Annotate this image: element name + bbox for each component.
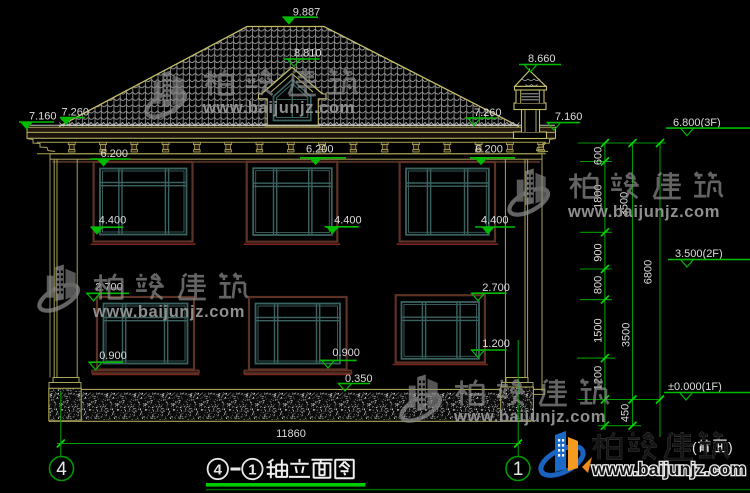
svg-text:1200: 1200 xyxy=(593,366,605,390)
svg-text:3500: 3500 xyxy=(621,323,633,347)
svg-text:6.200: 6.200 xyxy=(475,144,503,156)
svg-text:6.200: 6.200 xyxy=(306,144,334,156)
svg-text:4.400: 4.400 xyxy=(99,215,127,227)
svg-text:www.baijunjz.com: www.baijunjz.com xyxy=(591,459,746,479)
svg-text:11860: 11860 xyxy=(276,428,306,440)
svg-text:(: ( xyxy=(692,439,697,455)
svg-text:): ) xyxy=(728,439,733,455)
svg-text:±0.000(1F): ±0.000(1F) xyxy=(668,381,722,393)
svg-text:1500: 1500 xyxy=(593,318,605,342)
svg-text:4.400: 4.400 xyxy=(481,214,509,226)
svg-text:www.baijunjz.com: www.baijunjz.com xyxy=(567,203,720,221)
svg-text:1: 1 xyxy=(513,459,524,480)
svg-text:4: 4 xyxy=(214,462,223,479)
svg-text:www.baijunjz.com: www.baijunjz.com xyxy=(202,99,355,117)
svg-text:8.660: 8.660 xyxy=(528,53,556,65)
svg-text:1.200: 1.200 xyxy=(482,338,510,350)
svg-text:www.baijunjz.com: www.baijunjz.com xyxy=(92,303,245,321)
svg-text:900: 900 xyxy=(593,243,605,261)
svg-text:1: 1 xyxy=(248,462,256,479)
svg-text:600: 600 xyxy=(593,147,605,165)
svg-text:4: 4 xyxy=(56,459,67,480)
svg-text:0.900: 0.900 xyxy=(99,350,127,362)
svg-text:800: 800 xyxy=(593,276,605,294)
svg-text:6.800(3F): 6.800(3F) xyxy=(673,117,721,129)
svg-text:7.160: 7.160 xyxy=(555,111,583,123)
svg-text:4.400: 4.400 xyxy=(334,215,362,227)
svg-text:www.baijunjz.com: www.baijunjz.com xyxy=(453,408,606,426)
svg-text:6800: 6800 xyxy=(643,260,655,284)
svg-text:3.500(2F): 3.500(2F) xyxy=(675,248,723,260)
svg-text:450: 450 xyxy=(620,404,632,422)
svg-text:0.900: 0.900 xyxy=(332,347,360,359)
svg-text:6.200: 6.200 xyxy=(101,148,129,160)
svg-text:8.810: 8.810 xyxy=(294,48,322,60)
svg-text:7.160: 7.160 xyxy=(29,111,57,123)
